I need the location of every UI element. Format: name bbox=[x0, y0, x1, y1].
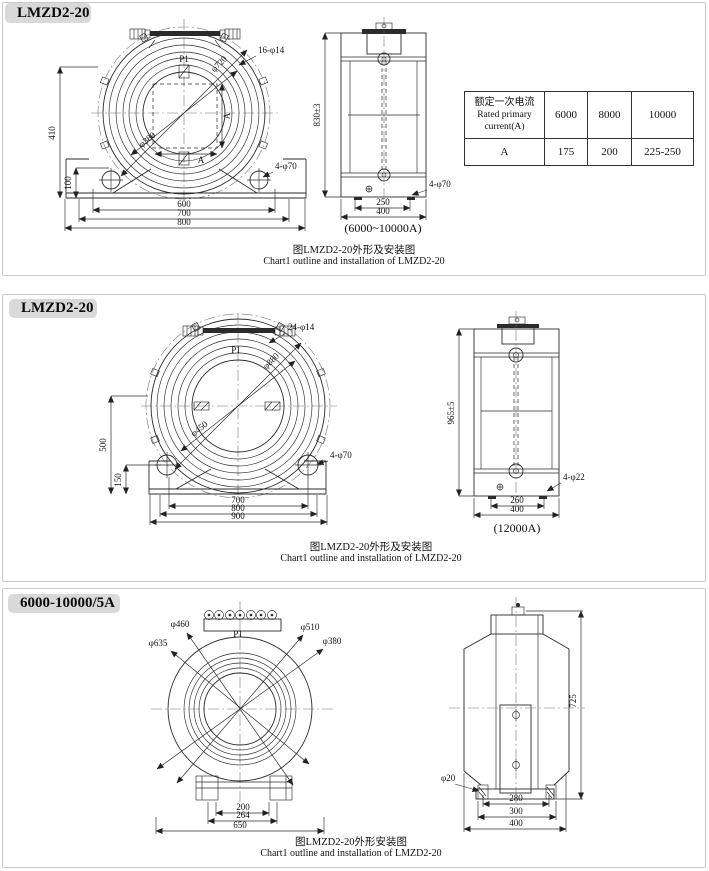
panel3-front-view: φ635 φ460 φ510 φ380 P1 200 264 650 bbox=[149, 601, 342, 834]
panel1-dim800: 800 bbox=[177, 217, 191, 227]
panel-lmzd2-20-second: LMZD2-20 bbox=[2, 294, 706, 582]
datasheet-page: { "panels": [ { "title": "LMZD2-20", "fr… bbox=[0, 0, 709, 871]
panel-lmzd2-20-first: LMZD2-20 bbox=[2, 2, 706, 276]
table-col-6000: 6000 bbox=[545, 92, 588, 139]
panel3-dim650: 650 bbox=[233, 820, 247, 830]
table-row-label: A bbox=[465, 139, 545, 165]
panel1-p1-label: P1 bbox=[179, 54, 189, 64]
panel3-p1-label: P1 bbox=[233, 629, 243, 639]
panel2-dim400: 400 bbox=[510, 504, 524, 514]
panel2-bolt-note: 24-φ14 bbox=[288, 322, 315, 332]
panel2-range-label: (12000A) bbox=[494, 521, 541, 535]
panel3-side-view: 725 φ20 280 300 400 bbox=[441, 597, 585, 832]
panel3-terminals bbox=[204, 611, 281, 632]
panel1-dim830: 830±3 bbox=[312, 103, 322, 126]
table-val-225-250: 225-250 bbox=[632, 139, 693, 165]
panel3-caption-cn: 图LMZD2-20外形安装图 bbox=[226, 837, 476, 848]
panel3-dia510-label: φ510 bbox=[301, 622, 320, 632]
panel1-dimA-horizontal: A bbox=[198, 155, 205, 165]
panel3-bottom-bracket bbox=[196, 776, 292, 800]
panel2-dim150: 150 bbox=[113, 473, 123, 487]
panel1-front-hole-note: 4-φ70 bbox=[275, 161, 297, 171]
panel2-p1-label: P1 bbox=[231, 345, 241, 355]
panel2-caption-en: Chart1 outline and installation of LMZD2… bbox=[246, 553, 496, 564]
panel2-dim965: 965±5 bbox=[446, 401, 456, 424]
panel2-dim500: 500 bbox=[98, 438, 108, 452]
panel3-dia635-label: φ635 bbox=[149, 638, 168, 648]
panel2-dia880-label: φ880 bbox=[261, 350, 282, 371]
panel2-side-view: 965±5 260 400 4-φ22 (12000A) bbox=[446, 311, 585, 535]
panel2-dia450-label: φ450 bbox=[189, 419, 210, 439]
table-val-200: 200 bbox=[588, 139, 632, 165]
panel3-caption-en: Chart1 outline and installation of LMZD2… bbox=[226, 848, 476, 859]
panel1-side-view: 830±3 250 400 4-φ70 (6000~10000A) bbox=[312, 17, 451, 235]
panel1-caption-en: Chart1 outline and installation of LMZD2… bbox=[229, 256, 479, 267]
panel2-front-hole-note: 4-φ70 bbox=[330, 450, 352, 460]
panel3-dia380-label: φ380 bbox=[323, 636, 342, 646]
table-val-175: 175 bbox=[545, 139, 588, 165]
panel3-dia460-label: φ460 bbox=[171, 619, 190, 629]
table-header-en2: current(A) bbox=[484, 121, 524, 133]
panel1-range-label: (6000~10000A) bbox=[344, 221, 421, 235]
panel1-dimA-vertical: A bbox=[222, 112, 232, 119]
panel2-side-hole-note: 4-φ22 bbox=[563, 472, 585, 482]
panel1-caption-cn: 图LMZD2-20外形及安装图 bbox=[229, 245, 479, 256]
table-col-10000: 10000 bbox=[632, 92, 693, 139]
panel3-dim400: 400 bbox=[509, 818, 523, 828]
table-header-en1: Rated primary bbox=[477, 109, 532, 121]
panel3-dim725: 725 bbox=[568, 694, 578, 708]
panel1-dim410: 410 bbox=[47, 126, 57, 140]
rated-current-table: 额定一次电流 Rated primary current(A) 6000 800… bbox=[464, 91, 694, 166]
panel3-dim300: 300 bbox=[509, 806, 523, 816]
panel2-caption-cn: 图LMZD2-20外形及安装图 bbox=[246, 542, 496, 553]
panel2-front-view: 24-φ14 P1 φ880 φ450 4-φ70 700 800 900 bbox=[98, 313, 352, 525]
panel1-side-hole-note: 4-φ70 bbox=[429, 179, 451, 189]
panel2-dim900: 900 bbox=[231, 511, 245, 521]
panel2-drawing: 24-φ14 P1 φ880 φ450 4-φ70 700 800 900 bbox=[3, 295, 707, 581]
panel-6000-10000-5a: 6000-10000/5A bbox=[2, 588, 706, 868]
panel1-bolt-note: 16-φ14 bbox=[258, 45, 285, 55]
panel1-dim400: 400 bbox=[376, 206, 390, 216]
panel1-dim100: 100 bbox=[63, 176, 73, 190]
table-header-cell: 额定一次电流 Rated primary current(A) bbox=[465, 92, 545, 139]
panel3-dim280: 280 bbox=[509, 793, 523, 803]
table-col-8000: 8000 bbox=[588, 92, 632, 139]
panel1-front-view: P1 φ720 φ380 A A 16-φ14 4-φ70 60 bbox=[47, 19, 306, 231]
panel3-phi20-note: φ20 bbox=[441, 773, 456, 783]
panel3-drawing: φ635 φ460 φ510 φ380 P1 200 264 650 bbox=[3, 589, 707, 867]
panel3-dim264: 264 bbox=[236, 810, 250, 820]
table-header-cn: 额定一次电流 bbox=[475, 97, 535, 109]
